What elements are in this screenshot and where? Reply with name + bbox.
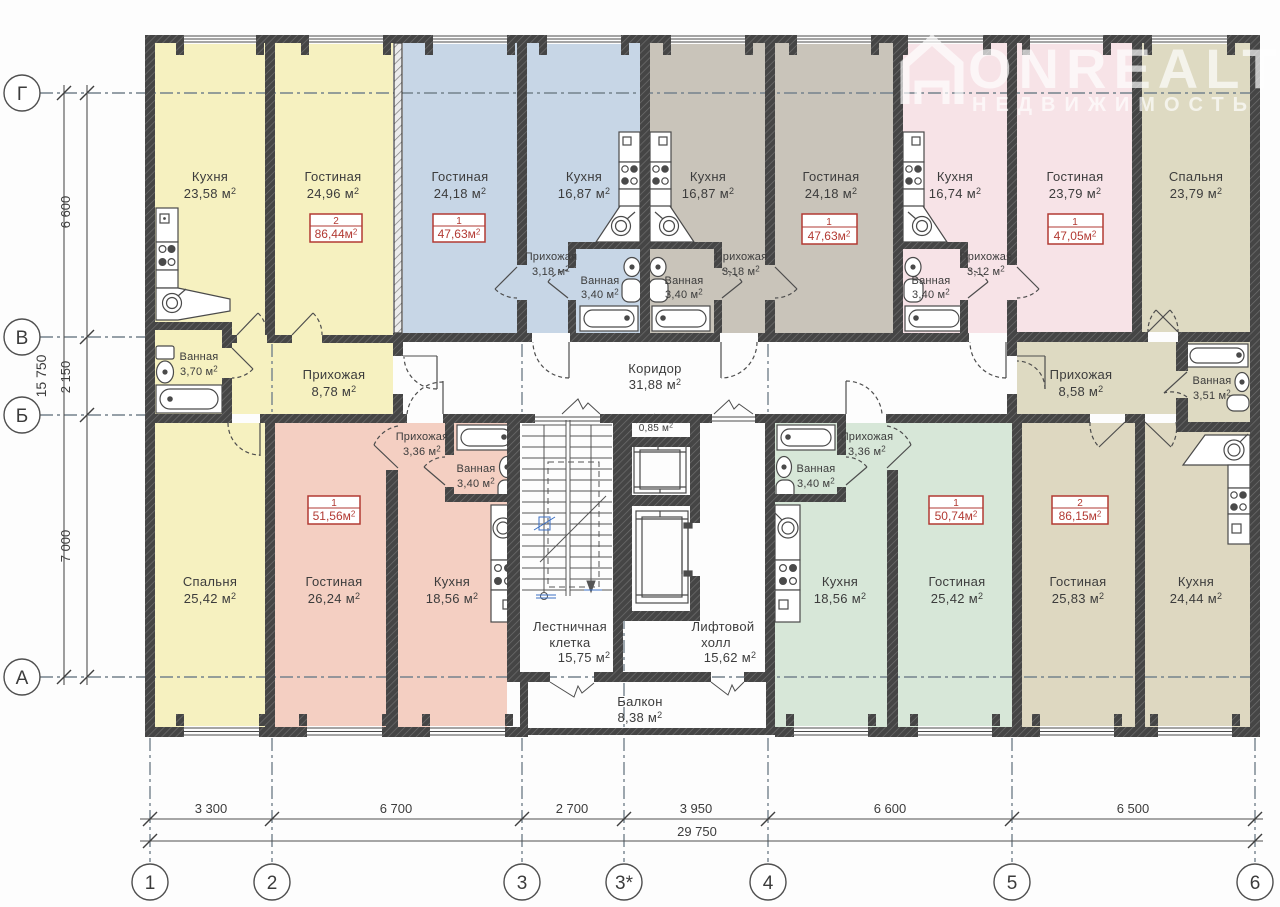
svg-text:6 600: 6 600 [58,196,73,229]
svg-text:50,74м2: 50,74м2 [935,509,978,523]
svg-text:51,56м2: 51,56м2 [313,509,356,523]
svg-text:7 000: 7 000 [58,530,73,563]
svg-text:Спальня: Спальня [1169,169,1223,184]
svg-text:23,58 м2: 23,58 м2 [184,186,237,201]
svg-text:3,40 м2: 3,40 м2 [581,288,619,302]
svg-text:15 750: 15 750 [33,354,49,397]
svg-text:3,18 м2: 3,18 м2 [722,265,760,279]
svg-text:А: А [16,668,29,689]
svg-text:2: 2 [1077,498,1083,509]
svg-text:Кухня: Кухня [690,169,726,184]
svg-text:Кухня: Кухня [434,574,470,589]
svg-text:24,44 м2: 24,44 м2 [1170,591,1223,606]
svg-text:Гостиная: Гостиная [929,574,986,589]
svg-text:НЕДВИЖИМОСТЬ: НЕДВИЖИМОСТЬ [972,94,1256,116]
svg-text:Б: Б [16,406,28,427]
svg-text:Ванная: Ванная [581,275,620,287]
svg-text:1: 1 [1072,217,1078,228]
svg-text:16,87 м2: 16,87 м2 [558,186,611,201]
svg-text:3,51 м2: 3,51 м2 [1193,389,1231,403]
svg-text:4: 4 [763,873,774,894]
svg-text:5: 5 [1007,873,1018,894]
svg-text:3,40 м2: 3,40 м2 [797,477,835,491]
svg-text:1: 1 [953,498,959,509]
svg-text:Коридор: Коридор [628,361,681,376]
svg-text:24,96 м2: 24,96 м2 [307,186,360,201]
svg-text:6: 6 [1250,873,1261,894]
svg-text:Гостиная: Гостиная [306,574,363,589]
svg-text:25,42 м2: 25,42 м2 [184,591,237,606]
svg-text:2 700: 2 700 [556,801,589,816]
svg-text:25,83 м2: 25,83 м2 [1052,591,1105,606]
svg-text:86,15м2: 86,15м2 [1059,509,1102,523]
svg-text:Кухня: Кухня [566,169,602,184]
svg-text:31,88 м2: 31,88 м2 [629,377,682,392]
svg-text:2: 2 [267,873,278,894]
svg-text:8,78 м2: 8,78 м2 [312,384,357,399]
svg-text:В: В [16,328,29,349]
svg-text:23,79 м2: 23,79 м2 [1049,186,1102,201]
svg-text:Г: Г [17,84,27,105]
svg-text:23,79 м2: 23,79 м2 [1170,186,1223,201]
svg-text:26,24 м2: 26,24 м2 [308,591,361,606]
svg-text:15,62 м2: 15,62 м2 [704,650,757,665]
svg-text:2 150: 2 150 [58,361,73,394]
svg-text:3*: 3* [615,873,634,894]
svg-text:18,56 м2: 18,56 м2 [814,591,867,606]
svg-text:3: 3 [517,873,528,894]
svg-text:Ванная: Ванная [912,275,951,287]
svg-text:8,38 м2: 8,38 м2 [618,710,663,725]
svg-text:ONREALT: ONREALT [968,37,1280,100]
svg-text:Ванная: Ванная [1193,375,1232,387]
svg-text:Ванная: Ванная [180,351,219,363]
svg-text:3,18 м2: 3,18 м2 [532,265,570,279]
svg-text:1: 1 [145,873,156,894]
svg-text:25,42 м2: 25,42 м2 [931,591,984,606]
svg-text:6 700: 6 700 [380,801,413,816]
svg-text:1: 1 [331,498,337,509]
svg-text:1: 1 [826,217,832,228]
svg-text:15,75 м2: 15,75 м2 [558,650,611,665]
svg-text:6 500: 6 500 [1117,801,1150,816]
svg-text:3,12 м2: 3,12 м2 [967,265,1005,279]
svg-text:47,05м2: 47,05м2 [1054,229,1097,243]
svg-text:Гостиная: Гостиная [432,169,489,184]
svg-text:47,63м2: 47,63м2 [438,227,481,241]
svg-text:24,18 м2: 24,18 м2 [434,186,487,201]
svg-text:Лестничная: Лестничная [533,619,607,634]
svg-text:24,18 м2: 24,18 м2 [805,186,858,201]
svg-text:Прихожая: Прихожая [715,251,768,263]
svg-text:0,85 м2: 0,85 м2 [639,423,673,435]
svg-text:3 950: 3 950 [680,801,713,816]
svg-text:86,44м2: 86,44м2 [315,227,358,241]
svg-text:16,74 м2: 16,74 м2 [929,186,982,201]
svg-text:6 600: 6 600 [874,801,907,816]
svg-text:Ванная: Ванная [797,463,836,475]
svg-text:Кухня: Кухня [192,169,228,184]
svg-text:16,87 м2: 16,87 м2 [682,186,735,201]
svg-text:Ванная: Ванная [457,463,496,475]
svg-text:1: 1 [456,216,462,227]
svg-text:3,40 м2: 3,40 м2 [912,288,950,302]
svg-text:Кухня: Кухня [937,169,973,184]
svg-text:Гостиная: Гостиная [1047,169,1104,184]
svg-text:Спальня: Спальня [183,574,237,589]
svg-text:3,36 м2: 3,36 м2 [848,445,886,459]
svg-text:3,40 м2: 3,40 м2 [457,477,495,491]
svg-text:Гостиная: Гостиная [803,169,860,184]
svg-text:Гостиная: Гостиная [1050,574,1107,589]
svg-text:Гостиная: Гостиная [305,169,362,184]
svg-text:Прихожая: Прихожая [960,251,1013,263]
svg-text:2: 2 [333,216,339,227]
svg-text:8,58 м2: 8,58 м2 [1059,384,1104,399]
svg-text:холл: холл [701,635,731,650]
svg-text:Прихожая: Прихожая [303,367,366,382]
svg-text:Прихожая: Прихожая [525,251,578,263]
svg-text:3,36 м2: 3,36 м2 [403,445,441,459]
svg-text:Ванная: Ванная [665,275,704,287]
svg-text:Балкон: Балкон [617,694,662,709]
svg-text:Лифтовой: Лифтовой [692,619,755,634]
svg-text:47,63м2: 47,63м2 [808,229,851,243]
svg-text:18,56 м2: 18,56 м2 [426,591,479,606]
svg-text:3,70 м2: 3,70 м2 [180,365,218,379]
svg-text:3,40 м2: 3,40 м2 [665,288,703,302]
svg-text:Прихожая: Прихожая [396,431,449,443]
svg-text:Кухня: Кухня [1178,574,1214,589]
svg-text:3 300: 3 300 [195,801,228,816]
svg-text:Прихожая: Прихожая [841,431,894,443]
svg-text:Прихожая: Прихожая [1050,367,1113,382]
svg-text:29 750: 29 750 [677,824,717,839]
svg-text:Кухня: Кухня [822,574,858,589]
svg-text:клетка: клетка [549,635,591,650]
